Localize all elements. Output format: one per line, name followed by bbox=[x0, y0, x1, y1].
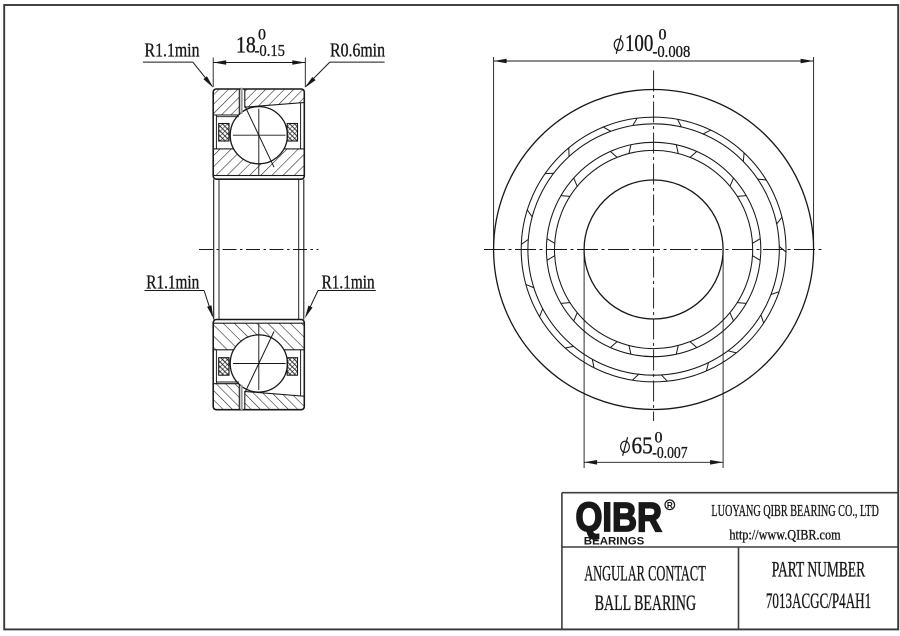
svg-text:QIBR: QIBR bbox=[576, 494, 663, 540]
svg-text:65: 65 bbox=[632, 433, 653, 459]
svg-text:BEARINGS: BEARINGS bbox=[584, 536, 645, 548]
svg-text:0: 0 bbox=[659, 26, 667, 43]
svg-text:-0.008: -0.008 bbox=[653, 42, 691, 61]
svg-text:R1.1min: R1.1min bbox=[145, 41, 200, 62]
svg-text:BALL BEARING: BALL BEARING bbox=[595, 590, 696, 615]
svg-text:-0.007: -0.007 bbox=[652, 443, 688, 462]
svg-text:PART NUMBER: PART NUMBER bbox=[772, 557, 866, 582]
svg-text:LUOYANG QIBR BEARING CO., LTD: LUOYANG QIBR BEARING CO., LTD bbox=[711, 501, 879, 520]
svg-text:ANGULAR CONTACT: ANGULAR CONTACT bbox=[584, 561, 706, 586]
svg-text:18: 18 bbox=[236, 33, 256, 59]
svg-text:http://www.QIBR.com: http://www.QIBR.com bbox=[729, 527, 841, 543]
svg-text:R0.6min: R0.6min bbox=[330, 41, 385, 62]
svg-text:R: R bbox=[667, 501, 673, 510]
svg-text:-0.15: -0.15 bbox=[255, 41, 286, 60]
svg-text:7013ACGC/P4AH1: 7013ACGC/P4AH1 bbox=[766, 588, 871, 613]
svg-text:100: 100 bbox=[625, 31, 653, 57]
